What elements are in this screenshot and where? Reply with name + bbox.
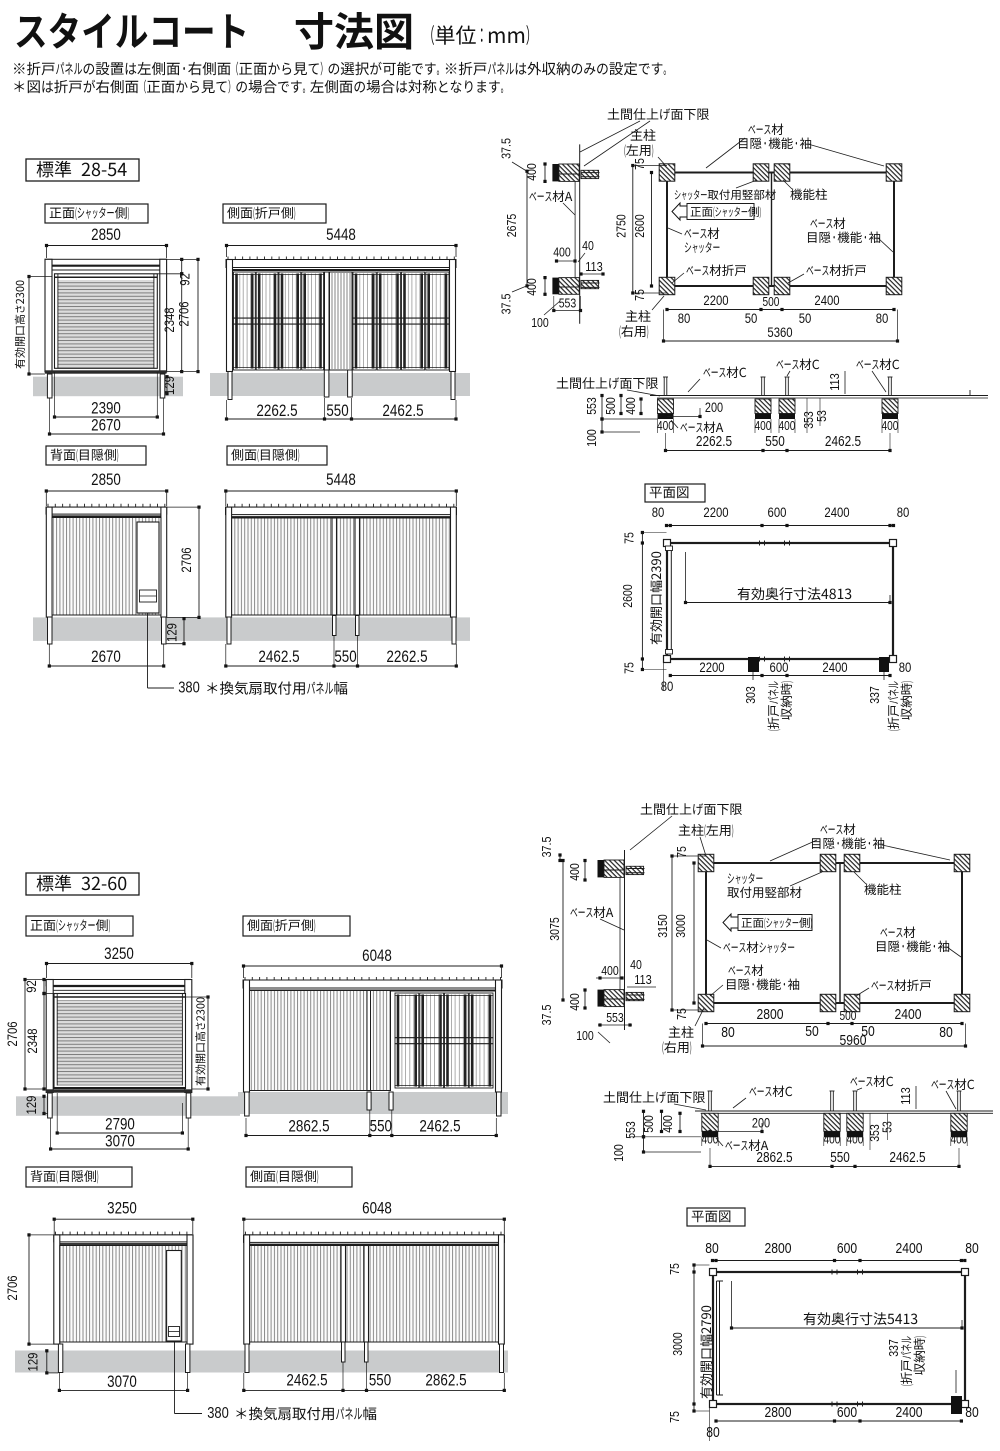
svg-text:2800: 2800 bbox=[765, 1240, 792, 1257]
svg-text:2462.5: 2462.5 bbox=[419, 1118, 460, 1136]
svg-text:500: 500 bbox=[603, 397, 618, 415]
svg-text:550: 550 bbox=[830, 1150, 850, 1166]
svg-text:75: 75 bbox=[632, 289, 647, 301]
svg-text:600: 600 bbox=[768, 504, 787, 520]
svg-text:400: 400 bbox=[524, 278, 539, 296]
svg-text:2462.5: 2462.5 bbox=[382, 402, 423, 420]
svg-text:400: 400 bbox=[755, 419, 772, 433]
svg-text:550: 550 bbox=[326, 402, 348, 420]
svg-text:380: 380 bbox=[207, 1405, 229, 1422]
svg-text:5448: 5448 bbox=[326, 226, 356, 244]
svg-text:129: 129 bbox=[23, 1095, 39, 1114]
svg-text:2390: 2390 bbox=[91, 400, 121, 418]
svg-text:53: 53 bbox=[814, 410, 829, 422]
svg-text:2800: 2800 bbox=[765, 1404, 792, 1421]
svg-text:550: 550 bbox=[765, 434, 785, 450]
svg-text:50: 50 bbox=[745, 310, 758, 326]
svg-text:400: 400 bbox=[951, 1133, 968, 1147]
svg-text:3000: 3000 bbox=[670, 1332, 685, 1355]
svg-text:2400: 2400 bbox=[896, 1240, 923, 1257]
svg-text:37.5: 37.5 bbox=[539, 837, 554, 858]
svg-text:3000: 3000 bbox=[673, 914, 688, 937]
svg-text:400: 400 bbox=[553, 245, 571, 260]
svg-text:80: 80 bbox=[965, 1404, 979, 1421]
svg-text:80: 80 bbox=[939, 1024, 953, 1041]
svg-text:92: 92 bbox=[177, 273, 193, 286]
svg-text:100: 100 bbox=[611, 1144, 626, 1162]
svg-text:3250: 3250 bbox=[104, 945, 134, 963]
svg-text:80: 80 bbox=[661, 678, 674, 694]
svg-text:75: 75 bbox=[622, 532, 637, 544]
svg-text:113: 113 bbox=[634, 972, 652, 987]
svg-text:3070: 3070 bbox=[105, 1133, 135, 1151]
svg-text:400: 400 bbox=[567, 993, 582, 1011]
svg-text:37.5: 37.5 bbox=[499, 138, 514, 159]
svg-text:2862.5: 2862.5 bbox=[756, 1150, 792, 1166]
svg-text:2400: 2400 bbox=[814, 292, 839, 308]
svg-text:80: 80 bbox=[876, 310, 889, 326]
svg-text:500: 500 bbox=[763, 295, 780, 309]
svg-text:3250: 3250 bbox=[107, 1200, 137, 1218]
svg-text:550: 550 bbox=[334, 648, 356, 666]
svg-text:2800: 2800 bbox=[757, 1006, 784, 1023]
svg-text:80: 80 bbox=[721, 1024, 735, 1041]
svg-text:40: 40 bbox=[630, 957, 642, 972]
svg-text:80: 80 bbox=[706, 1424, 720, 1441]
svg-text:80: 80 bbox=[897, 504, 910, 520]
svg-text:2706: 2706 bbox=[4, 1021, 20, 1046]
svg-text:2600: 2600 bbox=[632, 214, 647, 237]
svg-text:2750: 2750 bbox=[614, 214, 629, 237]
svg-text:2706: 2706 bbox=[4, 1275, 20, 1300]
svg-text:100: 100 bbox=[584, 429, 599, 447]
svg-text:400: 400 bbox=[882, 419, 899, 433]
svg-text:129: 129 bbox=[24, 1352, 40, 1371]
svg-text:113: 113 bbox=[585, 259, 603, 274]
svg-text:2462.5: 2462.5 bbox=[825, 434, 861, 450]
svg-text:2262.5: 2262.5 bbox=[696, 434, 732, 450]
svg-text:37.5: 37.5 bbox=[499, 294, 514, 315]
svg-text:37.5: 37.5 bbox=[539, 1005, 554, 1026]
svg-text:400: 400 bbox=[702, 1133, 719, 1147]
svg-text:50: 50 bbox=[805, 1023, 819, 1040]
svg-text:75: 75 bbox=[667, 1263, 682, 1275]
svg-text:553: 553 bbox=[606, 1010, 624, 1025]
svg-text:2462.5: 2462.5 bbox=[286, 1372, 327, 1390]
svg-text:2400: 2400 bbox=[896, 1404, 923, 1421]
svg-text:40: 40 bbox=[582, 238, 594, 253]
svg-text:400: 400 bbox=[660, 1115, 675, 1133]
svg-text:53: 53 bbox=[880, 1121, 895, 1133]
svg-text:200: 200 bbox=[705, 400, 723, 415]
svg-text:600: 600 bbox=[837, 1404, 857, 1421]
svg-text:400: 400 bbox=[779, 419, 796, 433]
svg-text:113: 113 bbox=[827, 373, 842, 391]
svg-text:337: 337 bbox=[867, 686, 882, 704]
svg-text:2262.5: 2262.5 bbox=[386, 648, 427, 666]
svg-text:500: 500 bbox=[840, 1009, 857, 1023]
svg-text:2400: 2400 bbox=[824, 504, 849, 520]
svg-text:2850: 2850 bbox=[91, 226, 121, 244]
svg-text:2200: 2200 bbox=[699, 659, 724, 675]
svg-text:2790: 2790 bbox=[105, 1116, 135, 1134]
svg-text:400: 400 bbox=[847, 1133, 864, 1147]
svg-text:380: 380 bbox=[178, 680, 200, 697]
svg-text:400: 400 bbox=[623, 397, 638, 415]
svg-text:2262.5: 2262.5 bbox=[256, 402, 297, 420]
svg-text:3075: 3075 bbox=[547, 917, 562, 940]
svg-text:500: 500 bbox=[641, 1115, 656, 1133]
svg-text:80: 80 bbox=[965, 1240, 979, 1257]
svg-text:2706: 2706 bbox=[175, 301, 191, 326]
svg-text:5448: 5448 bbox=[326, 471, 356, 489]
svg-text:337: 337 bbox=[886, 1339, 901, 1357]
svg-text:2462.5: 2462.5 bbox=[258, 648, 299, 666]
svg-text:100: 100 bbox=[531, 315, 549, 330]
svg-text:200: 200 bbox=[752, 1116, 770, 1131]
svg-text:2862.5: 2862.5 bbox=[288, 1118, 329, 1136]
svg-text:400: 400 bbox=[601, 963, 619, 978]
svg-text:2200: 2200 bbox=[703, 504, 728, 520]
svg-text:2600: 2600 bbox=[620, 584, 635, 607]
svg-text:2462.5: 2462.5 bbox=[889, 1150, 925, 1166]
svg-text:113: 113 bbox=[898, 1087, 913, 1105]
svg-text:553: 553 bbox=[559, 296, 577, 311]
svg-text:80: 80 bbox=[705, 1240, 719, 1257]
svg-text:129: 129 bbox=[164, 623, 180, 642]
svg-text:2200: 2200 bbox=[703, 292, 728, 308]
svg-text:2400: 2400 bbox=[822, 659, 847, 675]
svg-text:3070: 3070 bbox=[107, 1373, 137, 1391]
svg-text:75: 75 bbox=[622, 662, 637, 674]
svg-text:550: 550 bbox=[369, 1372, 391, 1390]
svg-text:2862.5: 2862.5 bbox=[425, 1372, 466, 1390]
svg-text:2706: 2706 bbox=[178, 547, 194, 572]
svg-text:2675: 2675 bbox=[504, 214, 519, 237]
svg-text:80: 80 bbox=[678, 310, 691, 326]
svg-text:2348: 2348 bbox=[24, 1028, 40, 1053]
svg-text:303: 303 bbox=[743, 686, 758, 704]
svg-text:100: 100 bbox=[576, 1028, 594, 1043]
svg-text:50: 50 bbox=[799, 310, 812, 326]
svg-text:553: 553 bbox=[584, 397, 599, 415]
svg-text:6048: 6048 bbox=[362, 1200, 392, 1218]
svg-text:129: 129 bbox=[161, 376, 177, 395]
svg-text:600: 600 bbox=[770, 659, 789, 675]
svg-text:2670: 2670 bbox=[91, 648, 121, 666]
svg-text:600: 600 bbox=[837, 1240, 857, 1257]
svg-text:2670: 2670 bbox=[91, 417, 121, 435]
svg-text:6048: 6048 bbox=[362, 947, 392, 965]
svg-text:400: 400 bbox=[567, 863, 582, 881]
svg-text:400: 400 bbox=[824, 1133, 841, 1147]
svg-text:5360: 5360 bbox=[767, 324, 792, 340]
svg-text:75: 75 bbox=[667, 1411, 682, 1423]
svg-text:80: 80 bbox=[899, 659, 912, 675]
svg-text:3150: 3150 bbox=[655, 914, 670, 937]
svg-text:2400: 2400 bbox=[895, 1006, 922, 1023]
svg-text:80: 80 bbox=[652, 504, 665, 520]
svg-text:2850: 2850 bbox=[91, 471, 121, 489]
svg-text:550: 550 bbox=[370, 1118, 392, 1136]
svg-text:553: 553 bbox=[623, 1121, 638, 1139]
